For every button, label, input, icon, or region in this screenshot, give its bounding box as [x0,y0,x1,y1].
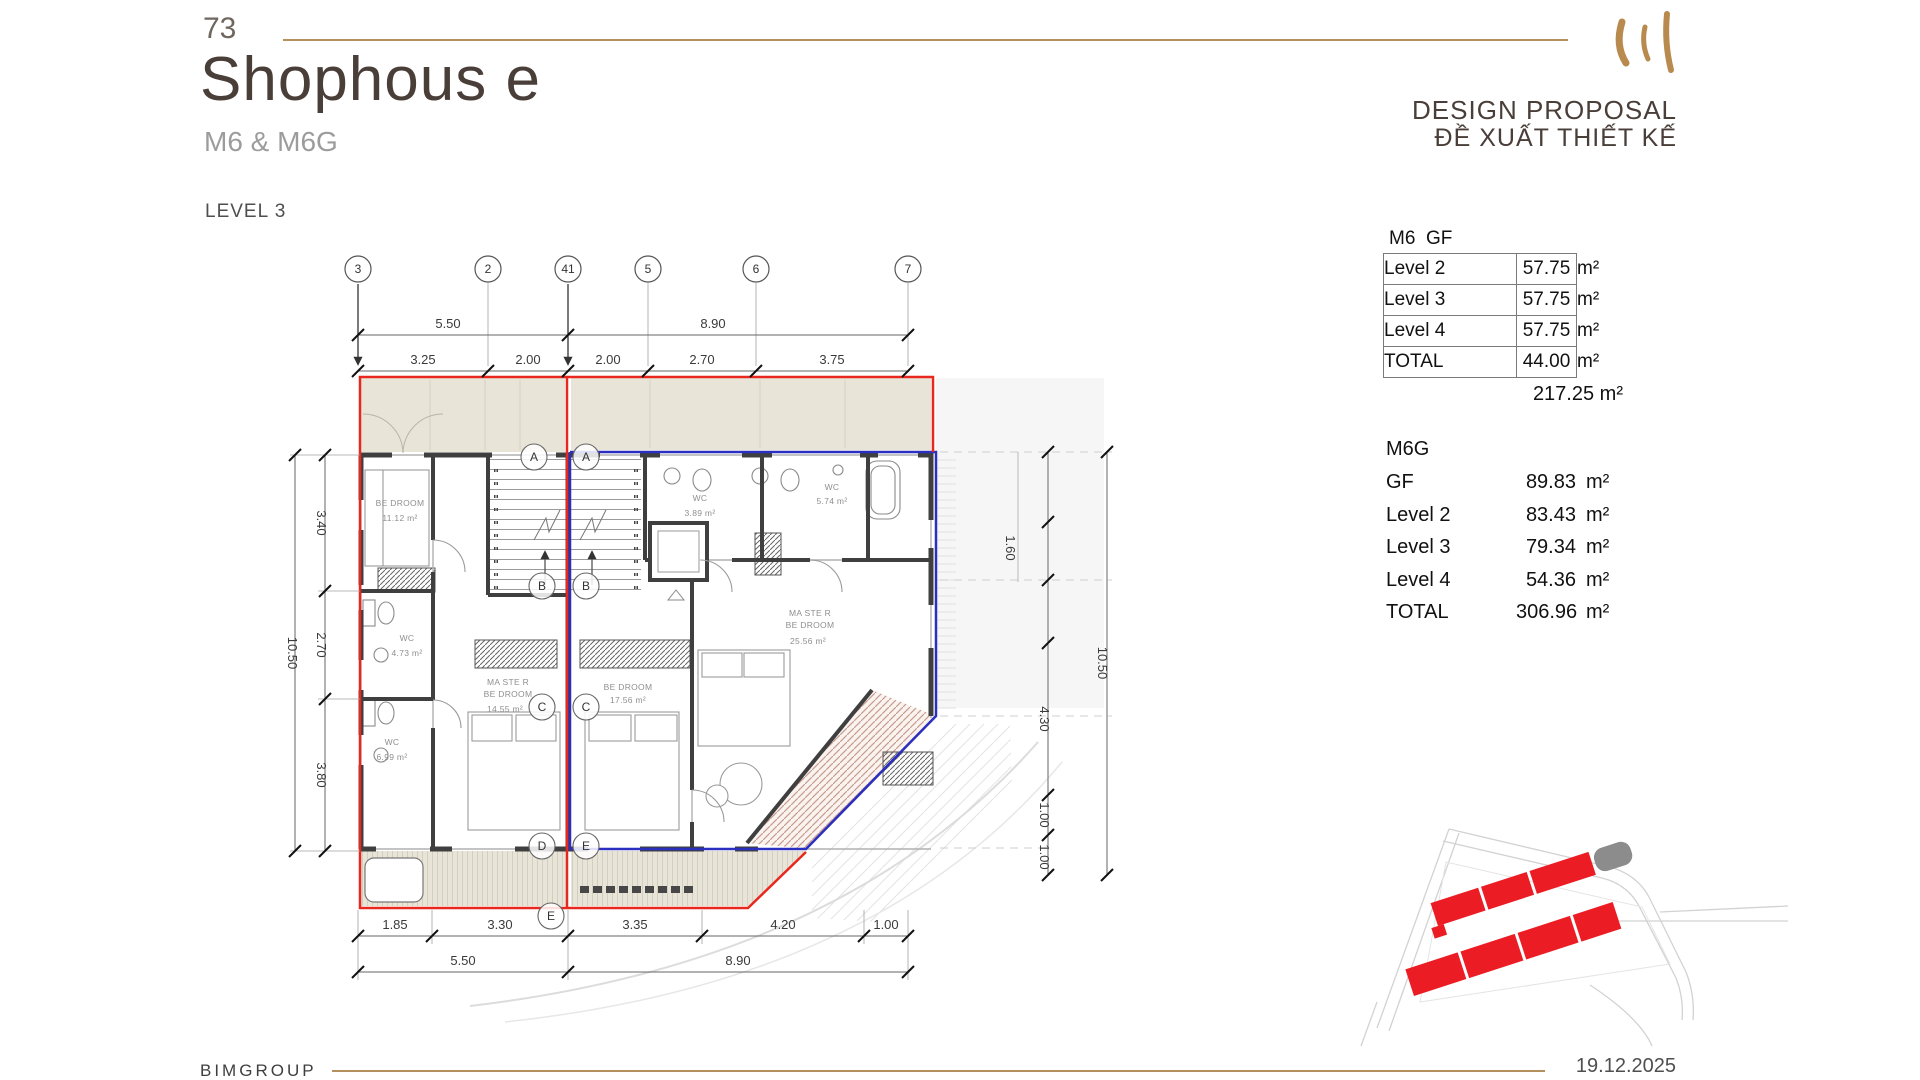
grid-bubble-label: B [582,579,590,593]
table-row: Level 2 83.43 m² [1383,504,1620,537]
page-title: Shophous e [200,44,541,115]
row-label: Level 4 [1384,316,1517,347]
grand-total: 217.25 m² [1383,383,1623,406]
table-row: Level 4 57.75 m² [1384,316,1622,347]
row-label: Level 4 [1383,569,1516,602]
room-area: 6.99 m² [377,752,408,762]
row-value: 79.34 [1516,536,1576,569]
grid-bubble-label: E [582,839,590,853]
area-table-m6: M6 GF Level 2 57.75 m² Level 3 57.75 m² … [1383,228,1623,406]
footer-date: 19.12.2025 [1540,1055,1676,1078]
footer-rule [332,1070,1545,1072]
row-unit: m² [1576,569,1620,602]
brand-logo-icon [1619,14,1671,70]
grid-bubble-label: 7 [905,262,912,276]
room-label: WC [385,737,400,747]
room-label: WC [825,482,840,492]
room-area: 25.56 m² [790,636,826,646]
table-title: M6 GF [1389,228,1623,250]
elevator-shaft [650,523,707,580]
dimension-chain-left: 3.40 2.70 3.80 10.50 [285,449,360,857]
row-label: Level 3 [1384,285,1517,316]
room-label: BE DROOM [604,682,653,692]
dim-label: 2.00 [595,352,620,367]
dim-label: 8.90 [725,953,750,968]
room-label: MA STE R [487,677,529,687]
title-rule [283,39,1568,41]
dim-label: 4.20 [770,917,795,932]
dim-label: 10.50 [1095,647,1110,680]
room-area: 14.55 m² [487,704,523,714]
grid-bubble-label: A [582,450,590,464]
row-label: GF [1383,471,1516,504]
dim-label: 1.85 [382,917,407,932]
row-value: 44.00 [1517,347,1577,378]
slide: 5.50 8.90 3.25 2.00 2.00 2.70 3.75 1.85 … [0,0,1920,1080]
room-area: 3.89 m² [685,508,716,518]
grid-bubble-label: E [547,909,555,923]
footer-company: BIMGROUP [200,1061,317,1080]
row-value: 89.83 [1516,471,1576,504]
site-key-map [1361,829,1788,1046]
row-unit: m² [1576,504,1620,537]
grid-bubble-label: C [582,700,591,714]
grid-bubble-label: C [538,700,547,714]
table-row: TOTAL 306.96 m² [1383,601,1620,634]
row-label: Level 2 [1384,254,1517,285]
room-area: 11.12 m² [382,513,417,523]
planter [365,858,423,902]
area-table-m6g: M6G GF 89.83 m² Level 2 83.43 m² Level 3… [1383,438,1620,634]
dim-label: 3.75 [819,352,844,367]
dim-label: 3.80 [314,762,329,787]
dim-label: 5.50 [435,316,460,331]
grid-bubble-label: 3 [355,262,362,276]
room-area: 4.73 m² [392,648,423,658]
table-row: Level 3 57.75 m² [1384,285,1622,316]
dim-label: 3.40 [314,510,329,535]
dim-label: 10.50 [285,637,300,670]
grid-bubbles-top: 3 2 41 5 6 7 [345,256,921,282]
row-value: 57.75 [1517,254,1577,285]
grid-bubble-label: 5 [645,262,652,276]
row-value: 306.96 [1516,601,1576,634]
row-value: 57.75 [1517,285,1577,316]
dim-label: 2.70 [314,632,329,657]
table-row: TOTAL 44.00 m² [1384,347,1622,378]
grid-bubble-label: 2 [485,262,492,276]
grid-bubble-label: A [530,450,538,464]
room-label: BE DROOM [484,689,533,699]
grid-bubble-label: B [538,579,546,593]
dim-label: 2.70 [689,352,714,367]
dimension-chain-top: 5.50 8.90 3.25 2.00 2.00 2.70 3.75 [352,283,914,377]
row-label: TOTAL [1384,347,1517,378]
dim-label: 3.30 [487,917,512,932]
room-label: BE DROOM [786,620,835,630]
dim-label: 3.35 [622,917,647,932]
row-value: 83.43 [1516,504,1576,537]
room-label: WC [693,493,708,503]
proposal-title-vi: ĐỀ XUẤT THIẾT KẾ [1200,124,1677,153]
dim-label: 1.60 [1003,535,1018,560]
row-unit: m² [1576,471,1620,504]
dim-label: 1.00 [873,917,898,932]
row-label: TOTAL [1383,601,1516,634]
grid-bubble-label: 6 [753,262,760,276]
row-unit: m² [1576,536,1620,569]
row-label: Level 3 [1383,536,1516,569]
row-unit: m² [1577,285,1622,316]
table-row: Level 2 57.75 m² [1384,254,1622,285]
row-label: Level 2 [1383,504,1516,537]
row-unit: m² [1576,601,1620,634]
dimension-chain-bottom: 1.85 3.30 3.35 4.20 1.00 5.50 8.90 [352,910,914,980]
dim-label: 4.30 [1037,706,1052,731]
row-unit: m² [1577,316,1622,347]
grid-bubble-label: D [538,839,547,853]
dim-label: 8.90 [700,316,725,331]
table-row: Level 3 79.34 m² [1383,536,1620,569]
dim-label: 1.00 [1037,802,1052,827]
room-area: 5.74 m² [817,496,848,506]
level-label: LEVEL 3 [205,201,286,223]
room-label: BE DROOM [376,498,425,508]
row-unit: m² [1577,347,1622,378]
table-row: GF 89.83 m² [1383,471,1620,504]
row-value: 54.36 [1516,569,1576,602]
room-label: MA STE R [789,608,831,618]
page-subtitle: M6 & M6G [204,126,338,158]
dim-label: 1.00 [1037,844,1052,869]
room-label: WC [400,633,415,643]
floor-plan-canvas: 5.50 8.90 3.25 2.00 2.00 2.70 3.75 1.85 … [0,0,1920,1080]
triangle-symbol [668,590,684,600]
dim-label: 2.00 [515,352,540,367]
proposal-title-en: DESIGN PROPOSAL [1200,95,1677,126]
grid-bubble-label: 41 [561,262,575,276]
room-area: 17.56 m² [610,695,646,705]
row-unit: m² [1577,254,1622,285]
slide-number: 73 [203,12,236,46]
table-row: Level 4 54.36 m² [1383,569,1620,602]
dim-label: 5.50 [450,953,475,968]
dim-label: 3.25 [410,352,435,367]
table-title: M6G [1386,438,1620,461]
row-value: 57.75 [1517,316,1577,347]
